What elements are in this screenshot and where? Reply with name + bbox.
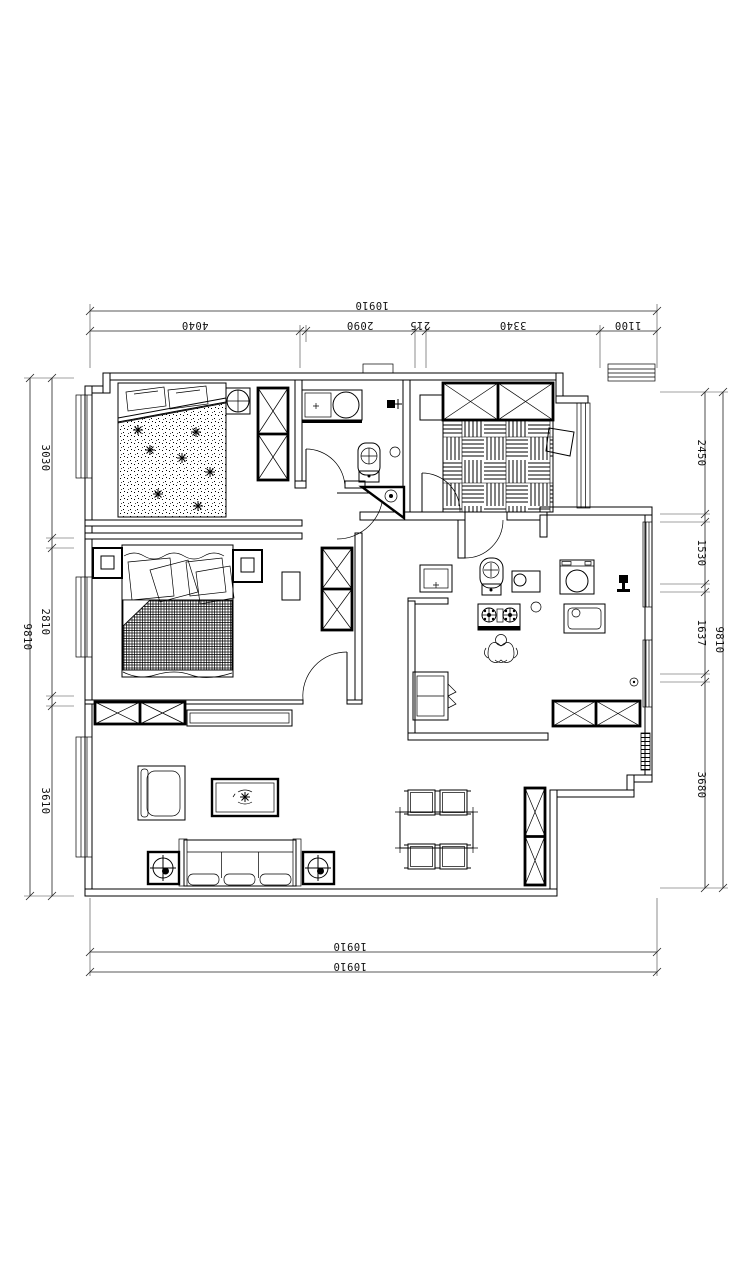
dining-chair: [404, 790, 439, 815]
left-dimension: 9810 3030 2810 3610: [21, 374, 74, 900]
kitchen: [413, 604, 640, 726]
pedestal-basin: [480, 558, 503, 595]
floor-drain: [390, 447, 400, 457]
low-cabinet: [512, 571, 540, 592]
dim-top-seg-4: 3340: [500, 319, 527, 331]
bedside-round-table: [226, 388, 250, 414]
dining-chair: [436, 790, 471, 815]
wardrobe-master: [322, 548, 352, 630]
tv-wall-cabinet: [95, 702, 185, 724]
washstand: [420, 565, 452, 592]
dim-top-total: 10910: [355, 299, 389, 311]
armchair: [138, 766, 185, 820]
master-bedroom: [93, 545, 352, 678]
floor-drain-balcony: [630, 678, 638, 686]
dim-bottom-total-lower: 10910: [333, 960, 367, 972]
dim-left-total: 9810: [21, 624, 33, 651]
floor-plan-canvas: 10910 4040 2090 215 3340 1100 9810 3030 …: [0, 0, 740, 1280]
tv-console: [187, 710, 292, 726]
bottom-dimension: 10910 10910: [86, 898, 661, 976]
sofa: [179, 839, 301, 886]
right-dimension: 9810 2450 1530 1637 3680: [660, 388, 728, 892]
drain-circle: [531, 602, 541, 612]
double-bed: [122, 545, 234, 678]
dim-bottom-total-upper: 10910: [333, 940, 367, 952]
laundry-sink: [564, 604, 605, 633]
nightstand-left: [93, 548, 122, 578]
nightstand-right: [233, 550, 262, 582]
roof-vent: [363, 364, 393, 373]
door-bathroom1: [306, 449, 345, 488]
shower-head: [387, 399, 402, 409]
dim-right-seg-1: 2450: [695, 440, 707, 467]
dressing-table: [282, 572, 300, 600]
bedroom-1: [118, 383, 288, 517]
balcony-utility: [531, 560, 638, 686]
faucet-icon: [617, 575, 630, 592]
person-figure: [484, 635, 517, 663]
vanity-counter: [302, 390, 362, 423]
coffee-table: [212, 779, 278, 816]
window-tatami-right: [577, 403, 590, 508]
washing-machine: [560, 560, 594, 594]
cooktop-counter: [478, 604, 520, 630]
living-room: [95, 702, 334, 886]
refrigerator: [413, 672, 456, 720]
dim-top-seg-5: 1100: [615, 319, 642, 331]
dining-cabinet: [525, 788, 545, 885]
top-dimension: 10910 4040 2090 215 3340 1100: [86, 299, 661, 368]
dim-left-seg-3: 3610: [39, 788, 51, 815]
bathroom-1: [302, 390, 404, 518]
dim-left-seg-2: 2810: [39, 609, 51, 636]
dim-right-total: 9810: [713, 627, 725, 654]
tatami-room: [420, 383, 574, 512]
door-master-bedroom: [303, 652, 347, 700]
second-bathroom: [420, 558, 540, 595]
floor-plan-page: 10910 4040 2090 215 3340 1100 9810 3030 …: [0, 0, 740, 1280]
window-kitchen-right-hatched: [641, 733, 650, 770]
dim-right-seg-4: 3680: [695, 772, 707, 799]
dim-right-seg-2: 1530: [695, 540, 707, 567]
dim-right-seg-3: 1637: [695, 620, 707, 647]
dim-left-seg-1: 3030: [39, 445, 51, 472]
side-stool: [420, 395, 443, 420]
flue-block: [608, 364, 655, 381]
dim-top-seg-2: 2090: [347, 319, 374, 331]
tatami-mat: [443, 420, 553, 512]
single-bed: [118, 383, 226, 517]
dim-top-seg-1: 4040: [182, 319, 209, 331]
side-table-lamp-right: [303, 852, 334, 884]
wardrobe-tatami: [443, 383, 553, 420]
toilet: [358, 443, 380, 482]
door-second-bathroom: [465, 520, 503, 558]
dim-top-seg-3: 215: [410, 319, 430, 331]
kitchen-cabinet: [553, 701, 640, 726]
side-table-lamp-left: [148, 852, 179, 884]
dining-area: [395, 788, 545, 885]
wardrobe-bedroom1: [258, 388, 288, 480]
